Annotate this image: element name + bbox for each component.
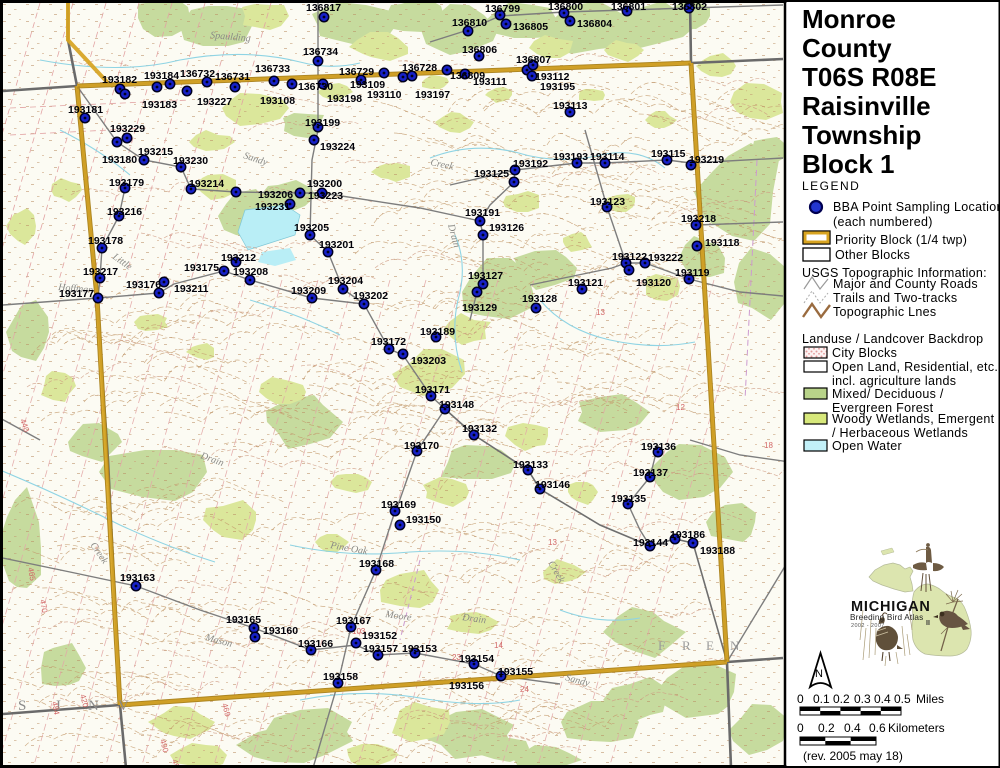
svg-text:193211: 193211 <box>174 283 209 295</box>
svg-text:193146: 193146 <box>535 479 570 491</box>
svg-text:0.5: 0.5 <box>894 692 911 706</box>
svg-text:193184: 193184 <box>144 70 179 82</box>
svg-text:193204: 193204 <box>328 275 363 287</box>
svg-text:193215: 193215 <box>138 146 173 158</box>
svg-text:193157: 193157 <box>363 643 398 655</box>
svg-text:193231: 193231 <box>255 201 290 213</box>
svg-text:193165: 193165 <box>226 614 261 626</box>
svg-text:136728: 136728 <box>402 62 437 74</box>
svg-text:Monroe: Monroe <box>802 4 896 34</box>
svg-text:13: 13 <box>596 308 605 317</box>
svg-text:193229: 193229 <box>110 123 145 135</box>
svg-text:136731: 136731 <box>215 71 250 83</box>
svg-text:City Blocks: City Blocks <box>832 346 897 360</box>
svg-text:Open Land, Residential, etc.: Open Land, Residential, etc. <box>832 360 998 374</box>
svg-text:0.4: 0.4 <box>844 721 861 735</box>
svg-text:193170: 193170 <box>404 440 439 452</box>
svg-text:Major and County Roads: Major and County Roads <box>833 277 978 291</box>
svg-text:Miles: Miles <box>916 692 944 706</box>
svg-text:136734: 136734 <box>303 46 338 58</box>
svg-text:193136: 193136 <box>641 441 676 453</box>
svg-text:193166: 193166 <box>298 638 333 650</box>
svg-text:193110: 193110 <box>367 89 402 101</box>
svg-text:193201: 193201 <box>319 239 354 251</box>
svg-text:193209: 193209 <box>291 285 326 297</box>
svg-text:193197: 193197 <box>415 89 450 101</box>
svg-text:136804: 136804 <box>577 18 612 30</box>
svg-text:193135: 193135 <box>611 493 646 505</box>
svg-text:Kilometers: Kilometers <box>888 721 945 735</box>
svg-text:12: 12 <box>676 403 685 412</box>
svg-text:193205: 193205 <box>294 222 329 234</box>
svg-text:2002 - 2007: 2002 - 2007 <box>851 623 885 629</box>
svg-text:0.4: 0.4 <box>874 692 891 706</box>
svg-text:193208: 193208 <box>233 266 268 278</box>
svg-text:Raisinville: Raisinville <box>802 91 931 121</box>
svg-text:LEGEND: LEGEND <box>802 179 860 193</box>
svg-text:193156: 193156 <box>449 680 484 692</box>
svg-text:193154: 193154 <box>459 653 494 665</box>
svg-text:193113: 193113 <box>553 100 588 112</box>
svg-text:193200: 193200 <box>307 178 342 190</box>
svg-text:N: N <box>730 638 740 653</box>
svg-text:136799: 136799 <box>485 3 520 15</box>
svg-text:193183: 193183 <box>142 99 177 111</box>
svg-text:193123: 193123 <box>590 196 625 208</box>
svg-text:193224: 193224 <box>320 141 355 153</box>
svg-text:136807: 136807 <box>516 54 551 66</box>
svg-text:193193: 193193 <box>553 151 588 163</box>
svg-text:18: 18 <box>764 441 773 450</box>
svg-text:193172: 193172 <box>371 336 406 348</box>
svg-text:193132: 193132 <box>462 423 497 435</box>
svg-text:0.2: 0.2 <box>833 692 850 706</box>
svg-text:R: R <box>682 638 691 653</box>
svg-text:193199: 193199 <box>305 117 340 129</box>
svg-text:193217: 193217 <box>83 266 118 278</box>
svg-text:193169: 193169 <box>381 499 416 511</box>
svg-text:193171: 193171 <box>415 384 450 396</box>
svg-text:193108: 193108 <box>260 95 295 107</box>
svg-text:0: 0 <box>797 721 804 735</box>
svg-text:193148: 193148 <box>439 399 474 411</box>
svg-text:193206: 193206 <box>258 189 293 201</box>
svg-text:24: 24 <box>520 685 529 694</box>
svg-text:0.2: 0.2 <box>818 721 835 735</box>
svg-text:BBA Point Sampling Locations: BBA Point Sampling Locations <box>833 200 1000 214</box>
svg-text:193186: 193186 <box>670 529 705 541</box>
svg-text:193179: 193179 <box>109 177 144 189</box>
svg-text:incl. agriculture lands: incl. agriculture lands <box>832 374 956 388</box>
svg-text:193198: 193198 <box>327 93 362 105</box>
svg-text:193181: 193181 <box>68 104 103 116</box>
svg-text:0.3: 0.3 <box>854 692 871 706</box>
svg-text:Other Blocks: Other Blocks <box>835 248 910 262</box>
svg-text:193189: 193189 <box>420 326 455 338</box>
svg-text:193119: 193119 <box>675 267 710 279</box>
svg-text:13: 13 <box>548 538 557 547</box>
svg-text:136817: 136817 <box>306 2 341 14</box>
svg-text:193203: 193203 <box>411 355 446 367</box>
svg-text:193122: 193122 <box>612 251 647 263</box>
svg-text:193160: 193160 <box>263 625 298 637</box>
svg-text:S: S <box>18 698 26 714</box>
svg-text:193121: 193121 <box>568 277 603 289</box>
svg-text:193216: 193216 <box>107 206 142 218</box>
svg-text:F: F <box>658 638 665 653</box>
svg-text:193188: 193188 <box>700 545 735 557</box>
svg-text:193128: 193128 <box>522 293 557 305</box>
svg-text:193195: 193195 <box>540 81 575 93</box>
svg-text:193133: 193133 <box>513 459 548 471</box>
svg-text:193118: 193118 <box>705 237 740 249</box>
svg-text:193153: 193153 <box>402 643 437 655</box>
svg-text:Block 1: Block 1 <box>802 149 895 179</box>
svg-text:(rev. 2005 may 18): (rev. 2005 may 18) <box>803 749 903 763</box>
svg-text:193180: 193180 <box>102 154 137 166</box>
svg-text:193176: 193176 <box>126 279 161 291</box>
svg-text:193182: 193182 <box>102 74 137 86</box>
svg-text:193227: 193227 <box>197 96 232 108</box>
svg-text:/ Herbaceous Wetlands: / Herbaceous Wetlands <box>832 426 968 440</box>
svg-text:193212: 193212 <box>221 252 256 264</box>
svg-text:193129: 193129 <box>462 302 497 314</box>
svg-text:193125: 193125 <box>474 168 509 180</box>
svg-text:193218: 193218 <box>681 213 716 225</box>
svg-text:Open Water: Open Water <box>832 439 902 453</box>
svg-text:193114: 193114 <box>590 151 625 163</box>
svg-text:193178: 193178 <box>88 235 123 247</box>
svg-text:County: County <box>802 33 892 63</box>
svg-text:Woody Wetlands, Emergent: Woody Wetlands, Emergent <box>832 412 995 426</box>
svg-text:193175: 193175 <box>184 262 219 274</box>
svg-text:193126: 193126 <box>489 222 524 234</box>
svg-text:136810: 136810 <box>452 17 487 29</box>
svg-text:E: E <box>706 638 714 653</box>
svg-text:136730: 136730 <box>298 81 333 93</box>
svg-text:193214: 193214 <box>189 178 224 190</box>
svg-text:136729: 136729 <box>339 66 374 78</box>
svg-text:Trails and Two-tracks: Trails and Two-tracks <box>833 291 957 305</box>
svg-text:193168: 193168 <box>359 558 394 570</box>
svg-text:193167: 193167 <box>336 615 371 627</box>
svg-text:193115: 193115 <box>651 148 686 160</box>
svg-text:136805: 136805 <box>513 21 548 33</box>
svg-text:193120: 193120 <box>636 277 671 289</box>
svg-text:193158: 193158 <box>323 671 358 683</box>
svg-text:Mixed/ Deciduous /: Mixed/ Deciduous / <box>832 387 944 401</box>
svg-text:14: 14 <box>494 641 503 650</box>
svg-text:0.6: 0.6 <box>869 721 886 735</box>
svg-text:193222: 193222 <box>648 252 683 264</box>
svg-text:193177: 193177 <box>59 288 94 300</box>
svg-text:193127: 193127 <box>468 270 503 282</box>
svg-text:193152: 193152 <box>362 630 397 642</box>
svg-text:193150: 193150 <box>406 514 441 526</box>
svg-text:N: N <box>815 668 823 680</box>
svg-text:T06S R08E: T06S R08E <box>802 62 936 92</box>
svg-text:Landuse / Landcover Backdrop: Landuse / Landcover Backdrop <box>802 332 983 346</box>
svg-text:(each numbered): (each numbered) <box>833 215 933 229</box>
svg-text:0: 0 <box>797 692 804 706</box>
svg-text:Township: Township <box>802 120 921 150</box>
svg-text:193163: 193163 <box>120 572 155 584</box>
svg-text:193111: 193111 <box>473 76 507 88</box>
svg-text:0.1: 0.1 <box>813 692 830 706</box>
svg-text:193191: 193191 <box>465 207 500 219</box>
svg-text:193144: 193144 <box>633 537 668 549</box>
svg-text:193230: 193230 <box>173 155 208 167</box>
svg-text:193155: 193155 <box>498 666 533 678</box>
svg-text:193192: 193192 <box>513 158 548 170</box>
svg-text:193219: 193219 <box>689 154 724 166</box>
svg-text:V: V <box>118 698 129 714</box>
svg-text:136806: 136806 <box>462 44 497 56</box>
svg-text:136733: 136733 <box>255 63 290 75</box>
svg-text:193137: 193137 <box>633 467 668 479</box>
svg-text:II: II <box>926 620 930 627</box>
svg-text:193223: 193223 <box>308 190 343 202</box>
svg-text:Breeding Bird Atlas: Breeding Bird Atlas <box>850 613 923 622</box>
svg-text:136732: 136732 <box>180 68 215 80</box>
svg-text:193202: 193202 <box>353 290 388 302</box>
svg-text:Priority Block (1/4 twp): Priority Block (1/4 twp) <box>835 233 967 247</box>
svg-text:Topographic Lnes: Topographic Lnes <box>833 305 936 319</box>
